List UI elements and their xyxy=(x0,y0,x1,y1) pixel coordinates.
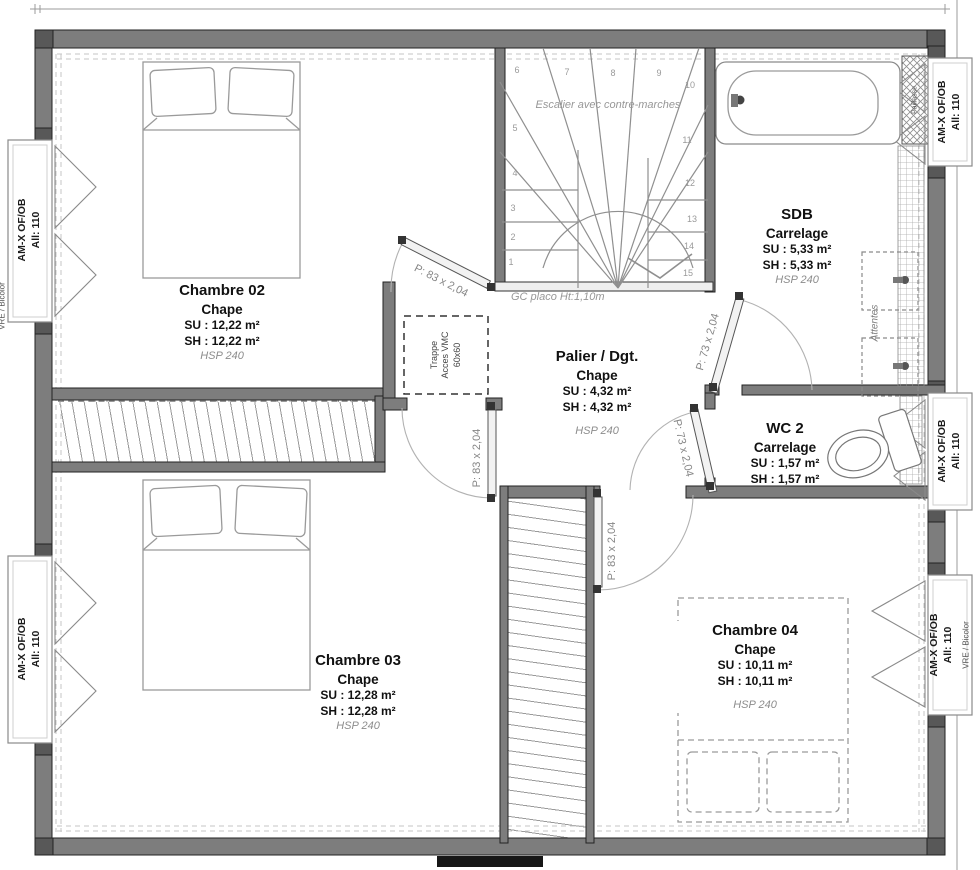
room-name: Chambre 02 xyxy=(122,281,322,301)
room-name: SDB xyxy=(707,205,887,225)
room-sh: SH : 12,28 m² xyxy=(268,704,448,720)
window-tag-left-top: AM-X OF/OB All: 110 xyxy=(15,199,43,262)
window-tag-model: AM-X OF/OB xyxy=(935,420,949,483)
step-number: 7 xyxy=(564,67,569,77)
bathtub-faucet xyxy=(736,96,745,105)
bathtub xyxy=(716,62,900,144)
room-sh: SH : 10,11 m² xyxy=(665,674,845,690)
step-number: 13 xyxy=(687,214,697,224)
window-tag-allege: All: 110 xyxy=(941,614,955,677)
room-label-wc2: WC 2 Carrelage SU : 1,57 m² SH : 1,57 m² xyxy=(700,419,870,487)
window-tag-model: AM-X OF/OB xyxy=(15,618,29,681)
room-sh: SH : 5,33 m² xyxy=(707,258,887,274)
window-tag-right-top: AM-X OF/OB All: 110 xyxy=(935,81,963,144)
room-su: SU : 1,57 m² xyxy=(700,456,870,472)
room-name: Palier / Dgt. xyxy=(507,347,687,367)
step-number: 11 xyxy=(682,135,691,145)
door-label-p73-wc2: P: 73 x 2,04 xyxy=(671,418,696,478)
step-number: 5 xyxy=(512,123,517,133)
paillasse-label: Paillasse xyxy=(912,86,919,114)
stair-guard-wall xyxy=(495,282,713,291)
tiled-wall-linings xyxy=(898,56,928,484)
trappe-vmc-label: Trappe Acces VMC 60x60 xyxy=(429,331,463,378)
staircase xyxy=(500,48,708,288)
step-number: 3 xyxy=(510,203,515,213)
trappe-line1: Trappe xyxy=(429,331,440,378)
room-hsp: HSP 240 xyxy=(268,719,448,733)
window-tag-allege: All: 110 xyxy=(949,81,963,144)
room-su: SU : 4,32 m² xyxy=(507,384,687,400)
window-tag-allege: All: 110 xyxy=(949,420,963,483)
room-finish: Chape xyxy=(665,641,845,659)
window-tag-model: AM-X OF/OB xyxy=(15,199,29,262)
vre-bicolor-tag-right: VRE / Bicolor xyxy=(962,621,971,669)
step-number: 15 xyxy=(683,268,693,278)
window-tag-allege: All: 110 xyxy=(29,618,43,681)
room-hsp: HSP 240 xyxy=(122,349,322,363)
room-hsp: HSP 240 xyxy=(665,698,845,712)
room-finish: Carrelage xyxy=(707,225,887,243)
trappe-line2: Acces VMC xyxy=(440,331,451,378)
bed-chambre-02 xyxy=(143,62,300,278)
vre-bicolor-tag-left: VRE / Bicolor xyxy=(0,282,7,330)
attentes-label: Attentes xyxy=(870,305,881,342)
room-su: SU : 12,28 m² xyxy=(268,688,448,704)
room-hsp: HSP 240 xyxy=(707,273,887,287)
stair-guard-note: GC placo Ht:1,10m xyxy=(511,291,605,303)
room-finish: Carrelage xyxy=(700,439,870,457)
step-number: 10 xyxy=(685,80,695,90)
room-hsp: HSP 240 xyxy=(507,424,687,438)
step-number: 1 xyxy=(508,257,513,267)
bottom-edge-bar xyxy=(437,856,543,867)
room-label-chambre04: Chambre 04 Chape SU : 10,11 m² SH : 10,1… xyxy=(665,621,845,713)
trappe-line3: 60x60 xyxy=(452,331,463,378)
window-tag-model: AM-X OF/OB xyxy=(935,81,949,144)
room-label-chambre03: Chambre 03 Chape SU : 12,28 m² SH : 12,2… xyxy=(268,651,448,734)
room-su: SU : 12,22 m² xyxy=(122,318,322,334)
door-label-p83-chambre03: P: 83 x 2,04 xyxy=(471,429,483,488)
step-number: 2 xyxy=(510,232,515,242)
step-number: 12 xyxy=(685,178,695,188)
step-number: 4 xyxy=(512,168,517,178)
room-name: Chambre 03 xyxy=(268,651,448,671)
room-label-sdb: SDB Carrelage SU : 5,33 m² SH : 5,33 m² … xyxy=(707,205,887,288)
door-label-p83-palier-chambre02: P: 83 x 2,04 xyxy=(412,262,470,299)
room-sh: SH : 1,57 m² xyxy=(700,472,870,488)
step-number: 6 xyxy=(514,65,519,75)
window-tag-allege: All: 110 xyxy=(29,199,43,262)
room-su: SU : 10,11 m² xyxy=(665,658,845,674)
step-number: 14 xyxy=(684,241,694,251)
closet-hatch-band-center xyxy=(506,498,592,843)
closet-hatch-band-chambre02 xyxy=(58,400,378,466)
window-tag-model: AM-X OF/OB xyxy=(927,614,941,677)
window-tag-left-bottom: AM-X OF/OB All: 110 xyxy=(15,618,43,681)
stair-note: Escalier avec contre-marches xyxy=(518,99,698,111)
room-finish: Chape xyxy=(122,301,322,319)
room-name: Chambre 04 xyxy=(665,621,845,641)
floor-plan: Chambre 02 Chape SU : 12,22 m² SH : 12,2… xyxy=(0,0,980,870)
room-label-palier: Palier / Dgt. Chape SU : 4,32 m² SH : 4,… xyxy=(507,347,687,439)
room-su: SU : 5,33 m² xyxy=(707,242,887,258)
step-number: 9 xyxy=(656,68,661,78)
room-sh: SH : 4,32 m² xyxy=(507,400,687,416)
room-name: WC 2 xyxy=(700,419,870,439)
room-finish: Chape xyxy=(268,671,448,689)
room-finish: Chape xyxy=(507,367,687,385)
room-label-chambre02: Chambre 02 Chape SU : 12,22 m² SH : 12,2… xyxy=(122,281,322,364)
window-tag-right-bottom: AM-X OF/OB All: 110 xyxy=(927,614,955,677)
window-tag-right-middle: AM-X OF/OB All: 110 xyxy=(935,420,963,483)
step-number: 8 xyxy=(610,68,615,78)
door-label-p83-chambre04: P: 83 x 2,04 xyxy=(606,522,618,581)
door-label-p73-sdb: P: 73 x 2,04 xyxy=(694,312,722,372)
room-sh: SH : 12,22 m² xyxy=(122,334,322,350)
